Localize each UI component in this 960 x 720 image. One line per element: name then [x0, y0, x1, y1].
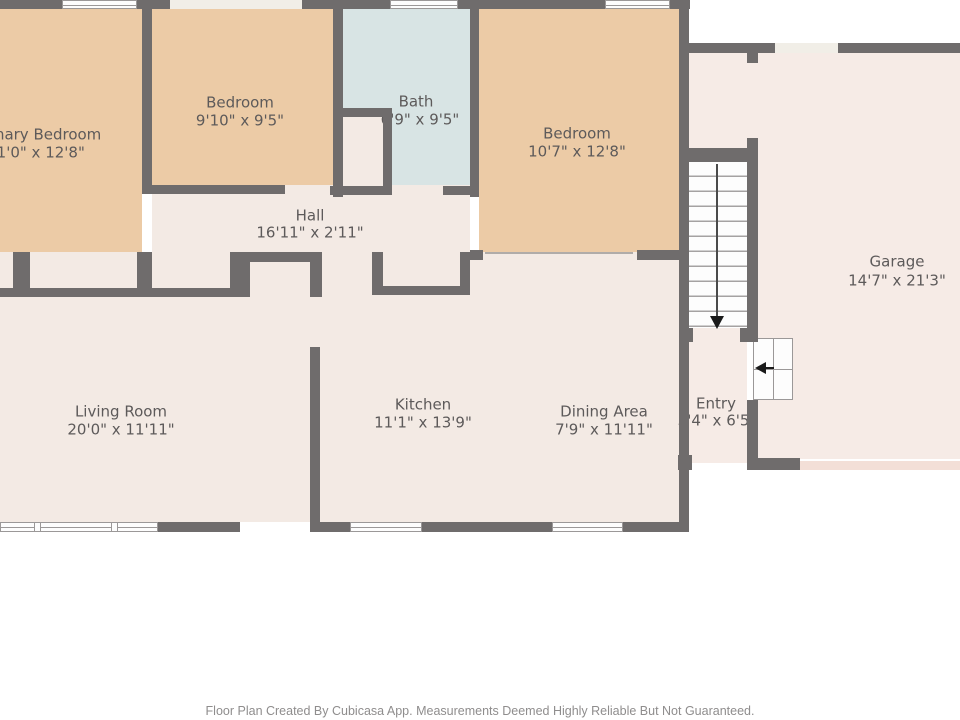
entry-dims: 3'4" x 6'5"	[678, 414, 757, 429]
wall	[142, 9, 152, 194]
wall	[637, 250, 680, 260]
window	[62, 0, 137, 9]
garage-door	[800, 459, 960, 470]
wall	[422, 522, 552, 532]
garage-label: Garage	[870, 255, 925, 270]
wall	[310, 262, 322, 297]
wall	[688, 328, 693, 342]
bath-label: Bath	[399, 95, 434, 110]
living-room-dims: 20'0" x 11'11"	[67, 423, 174, 438]
garage-dims: 14'7" x 21'3"	[848, 274, 946, 289]
window	[350, 522, 422, 532]
hall-dims: 16'11" x 2'11"	[256, 226, 363, 241]
wall	[310, 347, 320, 532]
kitchen-label: Kitchen	[395, 398, 451, 413]
entry-arrow-tail	[765, 367, 774, 369]
stair-entry-opening	[692, 328, 740, 342]
wall	[458, 0, 605, 9]
wall	[230, 252, 322, 262]
dining-area-dims: 7'9" x 11'11"	[555, 423, 653, 438]
stairs-down-arrow-icon	[710, 316, 724, 329]
staircase	[689, 162, 747, 328]
wall	[460, 252, 470, 295]
wall	[158, 522, 240, 532]
window	[605, 0, 670, 9]
wall	[470, 250, 483, 260]
kitchen-dims: 11'1" x 13'9"	[374, 416, 472, 431]
bedroom-2-label: Bedroom	[206, 96, 274, 111]
bath-closet-floor	[343, 117, 383, 186]
wall	[310, 522, 350, 532]
stair-landing	[689, 53, 747, 148]
window	[552, 522, 623, 532]
wall	[678, 455, 692, 470]
bedroom-3-label: Bedroom	[543, 127, 611, 142]
wall-opening	[170, 0, 302, 9]
primary-bedroom-label: Primary Bedroom	[0, 128, 101, 143]
wall	[838, 43, 960, 53]
wall	[747, 138, 758, 342]
dining-area-label: Dining Area	[560, 405, 648, 420]
wall	[137, 252, 152, 289]
wall	[679, 9, 689, 532]
wall	[747, 458, 800, 470]
stairs-direction-line	[716, 164, 718, 316]
wall	[372, 286, 470, 295]
wall	[623, 522, 689, 532]
wall	[747, 400, 758, 463]
floor-plan: Primary Bedroom 11'0" x 12'8" Bedroom 9'…	[0, 0, 960, 720]
landing-garage-opening	[747, 63, 758, 138]
wall	[137, 0, 170, 9]
wall	[470, 9, 479, 197]
floor-plan-disclaimer: Floor Plan Created By Cubicasa App. Meas…	[206, 704, 755, 718]
bedroom-2-dims: 9'10" x 9'5"	[196, 114, 284, 129]
wall	[670, 0, 690, 9]
window	[390, 0, 458, 9]
wall	[0, 288, 250, 297]
primary-bedroom-dims: 11'0" x 12'8"	[0, 146, 85, 161]
garage-wall-opening	[775, 43, 838, 53]
bath-dims: 6'9" x 9'5"	[381, 113, 460, 128]
bedroom-3-closet-opening	[485, 252, 633, 261]
hall-label: Hall	[296, 209, 325, 224]
wall	[142, 185, 285, 194]
entry-label: Entry	[696, 397, 736, 412]
wall	[0, 0, 62, 9]
wall	[13, 252, 30, 289]
wall	[688, 43, 775, 53]
living-room-label: Living Room	[75, 405, 167, 420]
wall	[679, 148, 758, 162]
wall	[330, 186, 392, 195]
bedroom-3-dims: 10'7" x 12'8"	[528, 145, 626, 160]
wall	[302, 0, 390, 9]
wall	[333, 9, 343, 197]
window-triple	[0, 522, 158, 532]
wall	[383, 108, 392, 194]
